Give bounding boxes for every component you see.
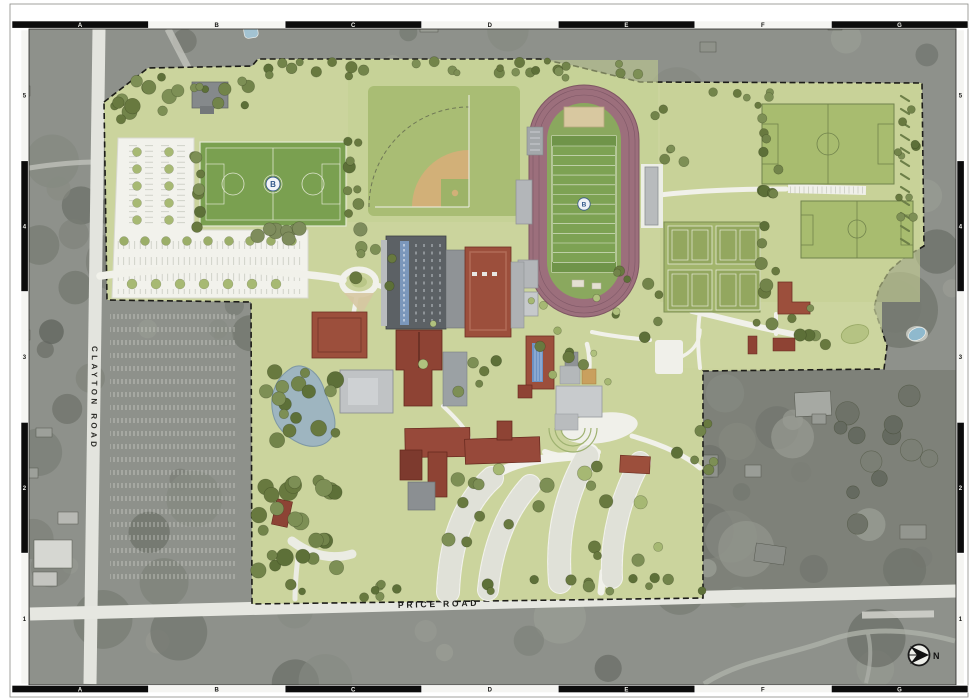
grid-letter-bottom: G <box>897 687 902 693</box>
grid-number-left: 4 <box>23 224 27 230</box>
grid-letter-bottom: D <box>488 687 493 693</box>
grid-number-left: 2 <box>23 486 27 492</box>
tennis-courts <box>664 222 760 312</box>
track-building-pad <box>564 107 604 127</box>
grid-number-left: 5 <box>23 94 27 100</box>
grid-letter-bottom: F <box>761 687 765 693</box>
grid-letter-top: D <box>488 23 493 29</box>
ballfield-building <box>516 180 532 224</box>
football-field-logo: B <box>582 202 587 209</box>
grid-number-right: 5 <box>959 94 963 100</box>
grid-letter-bottom: E <box>624 687 629 693</box>
grid-letter-bottom: B <box>214 687 219 693</box>
courts-plaza <box>655 340 683 374</box>
grid-letter-top: A <box>78 23 83 29</box>
turf-field: B <box>200 142 346 226</box>
grid-number-right: 4 <box>959 224 963 230</box>
grid-letter-bottom: A <box>78 687 83 693</box>
grid-number-left: 1 <box>23 617 27 623</box>
turf-field-logo: B <box>270 180 276 189</box>
grid-letter-bottom: C <box>351 687 356 693</box>
north-label: N <box>933 651 940 661</box>
campus-master-plan-page: B B <box>0 0 980 700</box>
grid-letter-top: B <box>214 23 219 29</box>
grid-number-left: 3 <box>23 355 27 361</box>
track-and-football-field: B <box>527 85 639 317</box>
bleachers <box>527 127 543 155</box>
offsite-parking-texture <box>110 310 235 585</box>
fieldhouse <box>645 167 658 225</box>
site-plan-map: B B <box>0 0 980 700</box>
grid-letter-top: C <box>351 23 356 29</box>
soccer-field-south <box>801 201 913 258</box>
clayton-road-label: CLAYTON ROAD <box>89 346 99 450</box>
grid-number-right: 1 <box>959 617 963 623</box>
grid-number-right: 2 <box>959 486 963 492</box>
grid-letter-top: F <box>761 23 765 29</box>
grid-number-right: 3 <box>959 355 963 361</box>
gymnasium <box>556 386 602 417</box>
grid-letter-top: G <box>897 23 902 29</box>
baseball-field <box>368 86 520 216</box>
grid-letter-top: E <box>624 23 629 29</box>
